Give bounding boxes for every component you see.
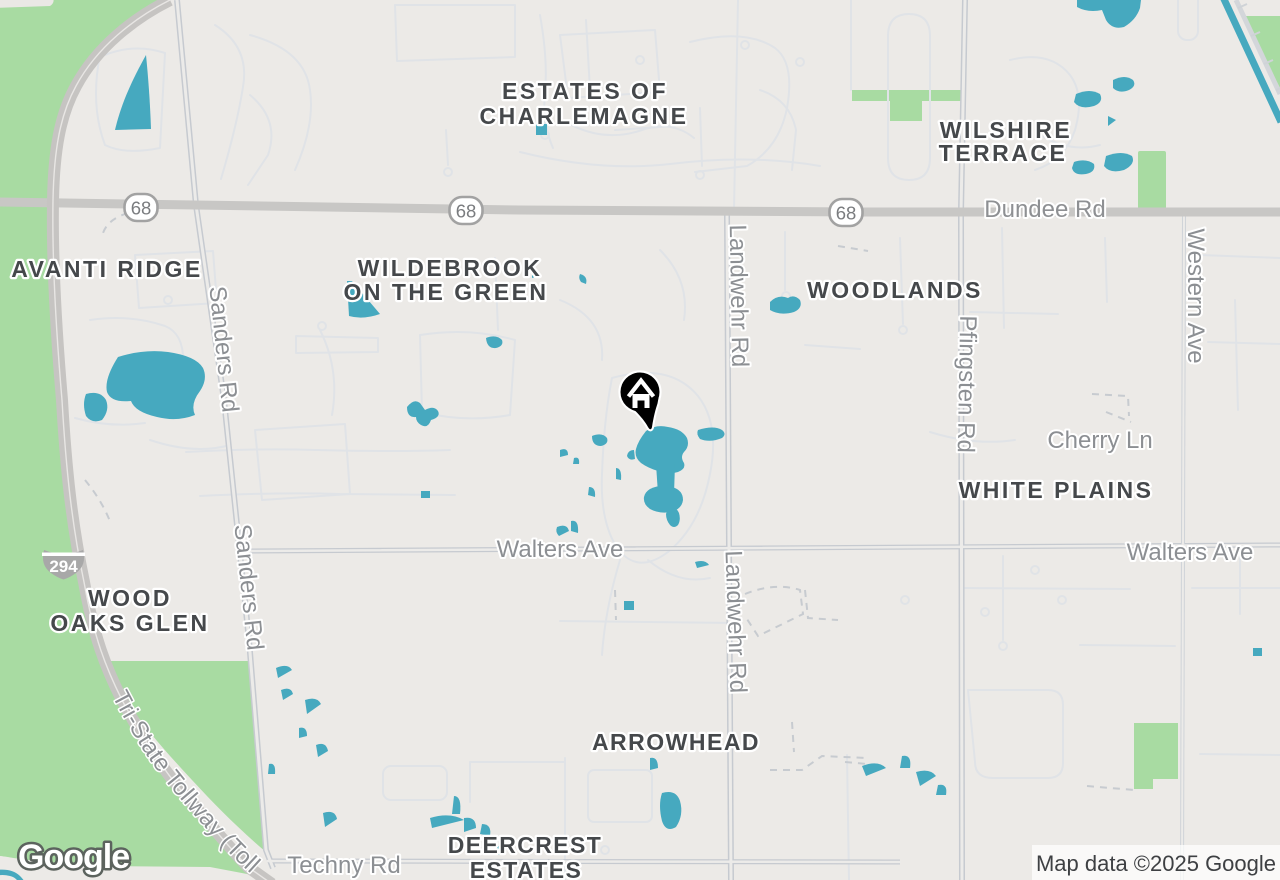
svg-text:Google: Google: [18, 838, 129, 876]
svg-text:Landwehr Rd: Landwehr Rd: [720, 550, 752, 694]
svg-text:Walters Ave: Walters Ave: [497, 536, 624, 563]
svg-text:DEERCREST: DEERCREST: [448, 832, 602, 858]
svg-text:Techny Rd: Techny Rd: [287, 852, 400, 879]
svg-text:TERRACE: TERRACE: [939, 140, 1068, 166]
svg-text:WOODLANDS: WOODLANDS: [807, 277, 983, 303]
svg-text:ON THE GREEN: ON THE GREEN: [343, 279, 548, 305]
svg-text:68: 68: [836, 203, 857, 224]
svg-text:WOOD: WOOD: [88, 585, 172, 611]
svg-text:Pfingsten Rd: Pfingsten Rd: [952, 315, 981, 453]
svg-text:Dundee Rd: Dundee Rd: [984, 196, 1105, 223]
svg-text:Western Ave: Western Ave: [1182, 228, 1209, 363]
svg-text:Cherry Ln: Cherry Ln: [1047, 427, 1152, 454]
svg-text:68: 68: [456, 201, 477, 222]
svg-text:ARROWHEAD: ARROWHEAD: [592, 729, 760, 755]
svg-text:CHARLEMAGNE: CHARLEMAGNE: [480, 103, 689, 129]
svg-text:Landwehr Rd: Landwehr Rd: [724, 224, 753, 367]
svg-text:Map data ©2025 Google: Map data ©2025 Google: [1036, 851, 1276, 876]
svg-text:WHITE PLAINS: WHITE PLAINS: [959, 477, 1154, 503]
svg-text:ESTATES: ESTATES: [470, 857, 582, 880]
svg-text:68: 68: [131, 198, 152, 219]
svg-text:ESTATES OF: ESTATES OF: [502, 78, 668, 104]
svg-text:AVANTI RIDGE: AVANTI RIDGE: [11, 256, 202, 282]
svg-text:WILDEBROOK: WILDEBROOK: [358, 255, 543, 281]
svg-text:294: 294: [49, 557, 78, 576]
svg-text:Walters Ave: Walters Ave: [1127, 539, 1254, 566]
svg-text:OAKS GLEN: OAKS GLEN: [50, 610, 209, 636]
